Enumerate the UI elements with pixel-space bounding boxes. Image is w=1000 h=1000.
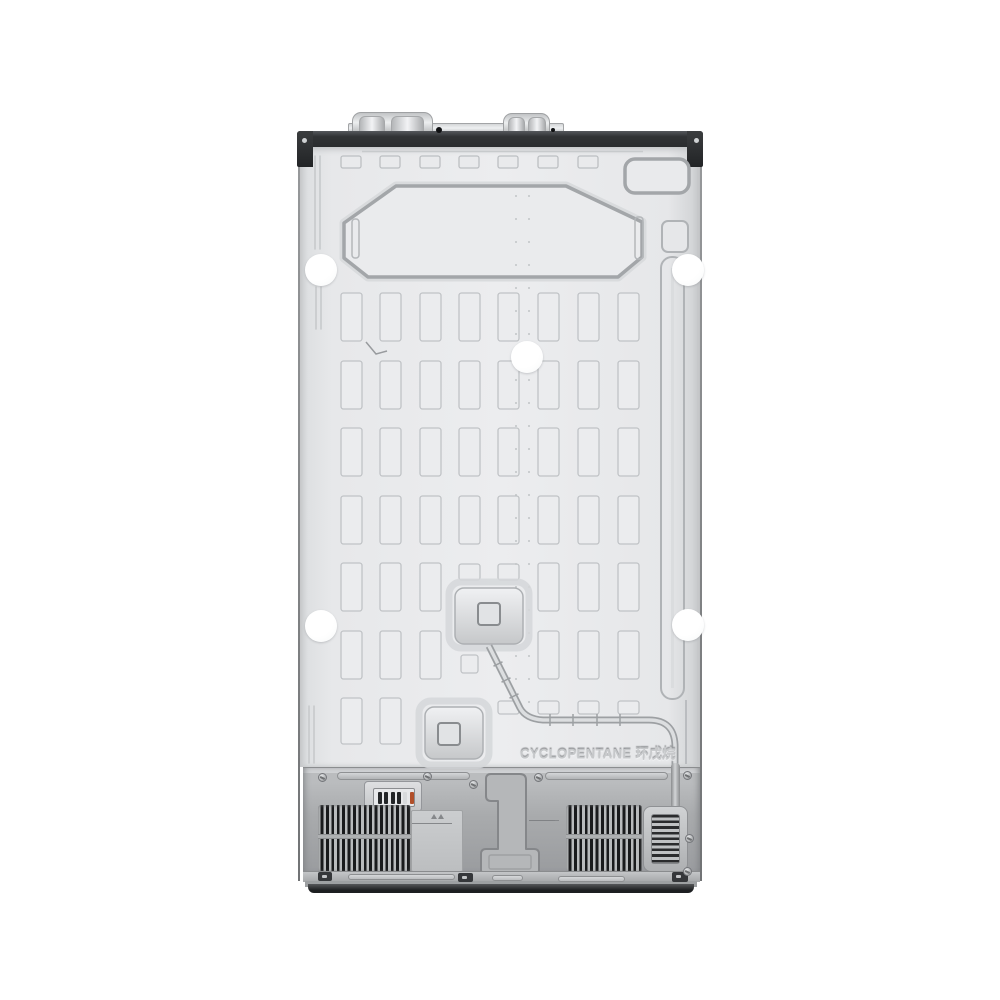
screw-head <box>685 834 694 843</box>
refrigerant-emboss-text: CYCLOPENTANE 环戊烷 <box>520 742 696 763</box>
screw-head <box>534 773 543 782</box>
corner-bracket-left <box>297 131 313 167</box>
screw-hole <box>436 127 442 133</box>
rating-label <box>411 810 463 872</box>
bracket-screw <box>302 138 307 143</box>
vent-divider <box>566 834 642 839</box>
screw-slot <box>424 775 429 778</box>
terminal-pin <box>397 792 401 804</box>
screw-head <box>469 780 478 789</box>
clip-pip <box>676 875 681 878</box>
embossed-warning-text <box>527 818 561 842</box>
terminal-pin <box>384 792 388 804</box>
corner-bracket-right <box>687 131 703 167</box>
terminal-pin <box>403 792 407 804</box>
service-vent-slats <box>651 814 680 864</box>
service-vent <box>643 806 688 872</box>
screw-cover-sticker <box>511 341 543 373</box>
triangle-icon <box>431 814 437 819</box>
vent-grille-right <box>566 805 642 872</box>
cabinet-side-edge-right <box>700 147 702 881</box>
screw-head <box>683 867 692 876</box>
mini-text-line <box>529 820 555 821</box>
vent-grille-left <box>318 805 411 872</box>
base-clip <box>458 873 473 882</box>
screw-slot <box>684 870 689 873</box>
screw-slot <box>686 837 691 840</box>
base-slot <box>492 875 523 881</box>
label-text-line <box>412 823 446 824</box>
bracket-screw <box>694 138 699 143</box>
screw-cover-sticker <box>305 610 337 642</box>
screw-slot <box>535 776 540 779</box>
screw-head <box>683 771 692 780</box>
compartment-rail-right <box>545 772 668 780</box>
screw-head <box>423 772 432 781</box>
cabinet-side-edge-left <box>298 147 300 881</box>
screw-slot <box>684 774 689 777</box>
tube-channel-vertical <box>671 763 680 809</box>
label-emblem-icon <box>431 814 443 819</box>
terminal-pin <box>378 792 382 804</box>
screw-slot <box>470 783 475 786</box>
terminal-pin <box>391 792 395 804</box>
triangle-icon <box>438 814 444 819</box>
compartment-rail-left <box>337 772 470 780</box>
vent-divider <box>318 834 411 839</box>
screw-cover-sticker <box>305 254 337 286</box>
plinth-shadow <box>308 884 694 893</box>
clip-pip <box>322 875 327 878</box>
product-photo-stage: CYCLOPENTANE 环戊烷 <box>0 0 1000 1000</box>
screw-slot <box>319 776 324 779</box>
screw-head <box>318 773 327 782</box>
base-slot <box>558 876 625 882</box>
base-slot <box>348 874 455 880</box>
base-clip <box>318 872 332 881</box>
terminal-pin <box>410 792 414 804</box>
screw-cover-sticker <box>672 254 704 286</box>
clip-pip <box>462 876 467 879</box>
top-edge-band <box>297 131 703 147</box>
screw-cover-sticker <box>672 609 704 641</box>
back-panel <box>300 147 700 767</box>
screw-hole <box>551 128 555 132</box>
